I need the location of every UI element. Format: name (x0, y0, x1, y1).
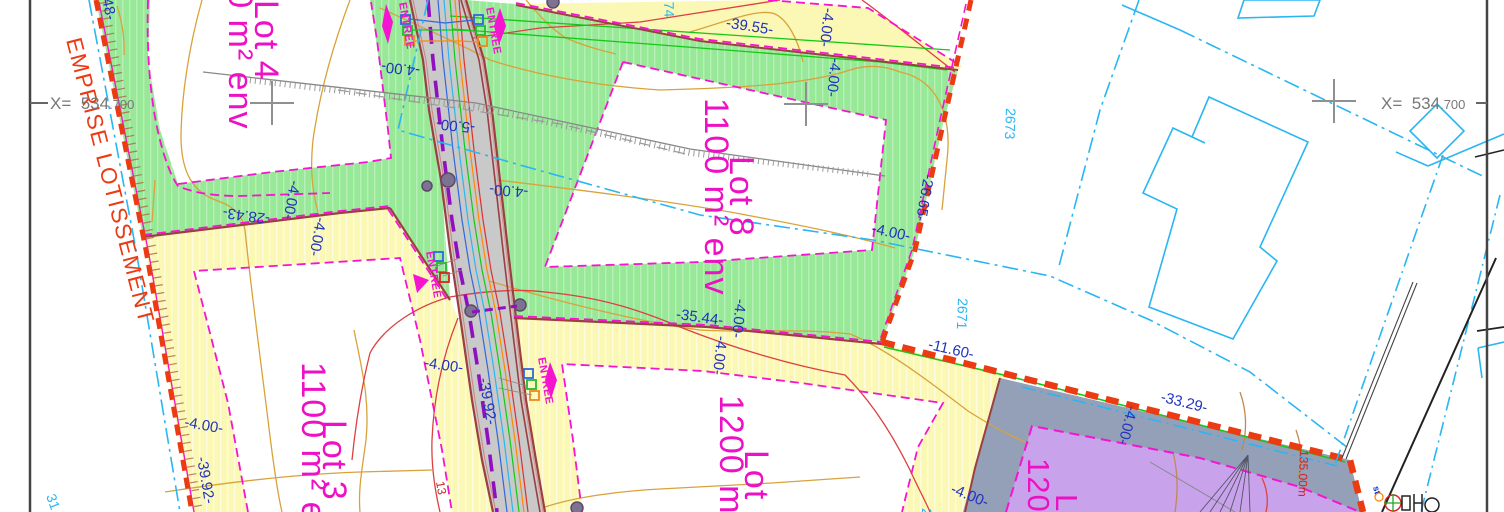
svg-text:2671: 2671 (954, 298, 971, 330)
svg-text:1200 m: 1200 m (1021, 458, 1056, 512)
svg-text:1100 m² env: 1100 m² env (697, 98, 735, 295)
svg-text:1200 m²: 1200 m² (712, 395, 750, 512)
svg-text:13: 13 (433, 480, 449, 496)
svg-text:2: 2 (919, 508, 935, 512)
svg-text:2673: 2673 (1002, 108, 1019, 140)
svg-text:-4.00-: -4.00- (489, 181, 529, 201)
svg-text:135.00m: 135.00m (1295, 450, 1311, 497)
svg-text:1100 m² e: 1100 m² e (294, 362, 332, 512)
svg-text:X= 534.700: X= 534.700 (50, 94, 134, 113)
svg-text:X= 534.700: X= 534.700 (1381, 94, 1465, 113)
svg-text:1100 m² env: 1100 m² env (221, 0, 259, 129)
svg-text:74: 74 (661, 2, 678, 18)
